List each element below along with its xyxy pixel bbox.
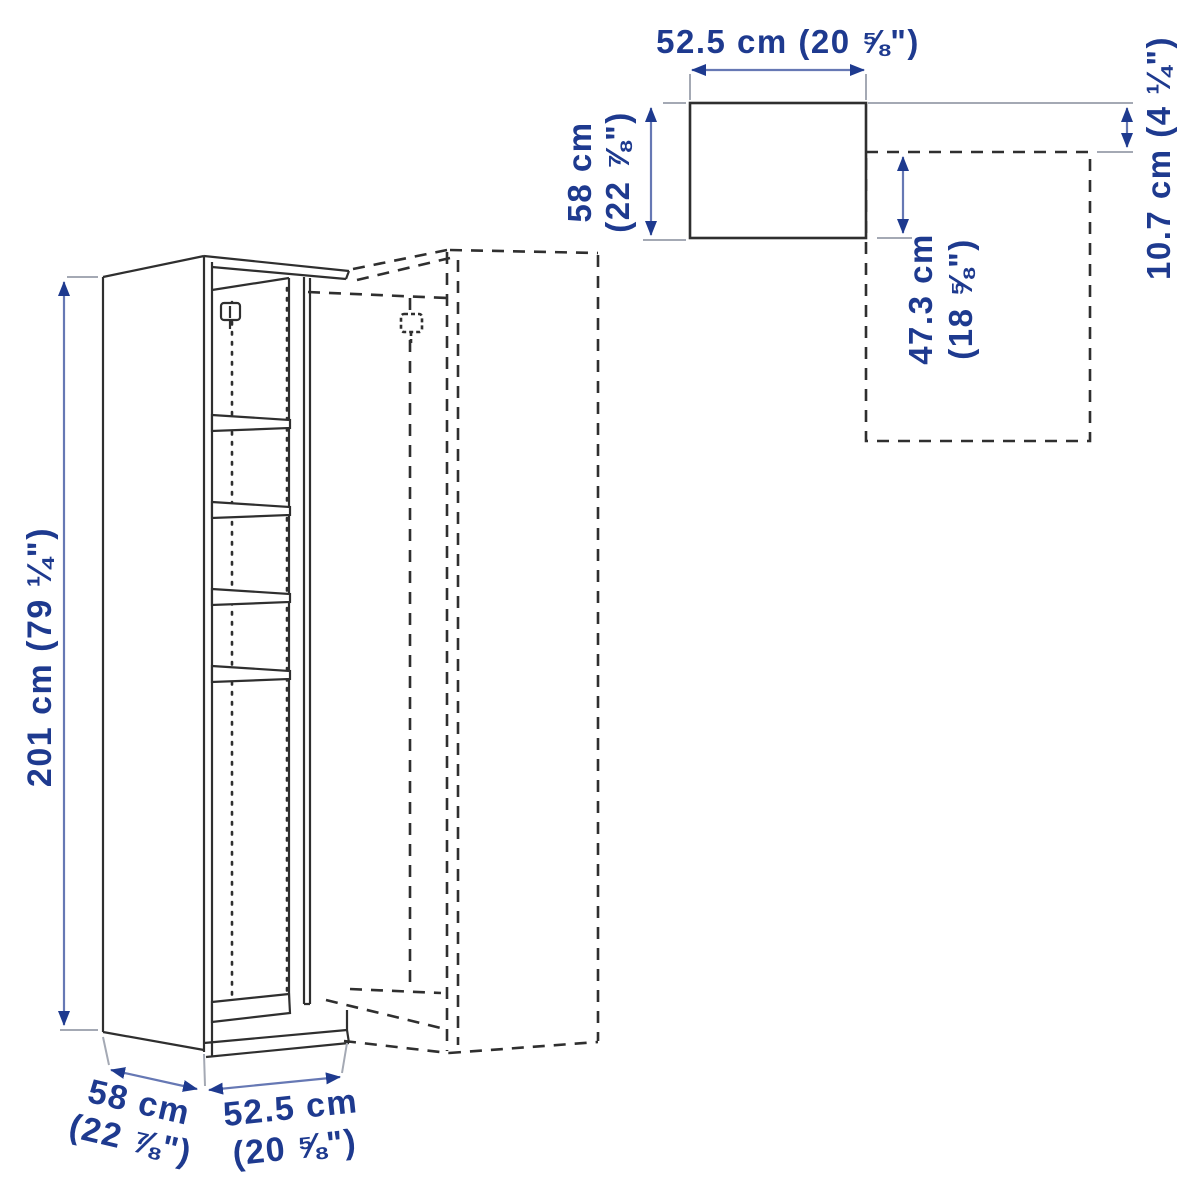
plan-overlap-label: 47.3 cm (18 ⅝") [902, 233, 979, 365]
plan-overlap-label-line2: (18 ⅝") [942, 238, 979, 360]
shelf-peg-holes [232, 288, 287, 1000]
frame-outline [103, 256, 349, 1057]
plan-view [690, 103, 1090, 441]
plan-depth-label: 58 cm (22 ⅞") [561, 111, 636, 233]
diagram-canvas: 52.5 cm (20 ⅝") 58 cm (22 ⅞") 47.3 cm (1… [0, 0, 1200, 1200]
height-label: 201 cm (79 ¼") [21, 527, 59, 787]
plan-overlap-label-line1: 47.3 cm [902, 233, 939, 365]
dimension-diagram: 52.5 cm (20 ⅝") 58 cm (22 ⅞") 47.3 cm (1… [0, 0, 1200, 1200]
plan-depth-label-line2: (22 ⅞") [599, 111, 636, 233]
leader-line-set [60, 74, 1133, 1086]
addon-frame-dashed [308, 250, 598, 1053]
addon-outline [308, 250, 598, 1053]
height-label-text: 201 cm (79 ¼") [21, 527, 59, 787]
plan-offset-label: 10.7 cm (4 ¼") [1140, 36, 1177, 280]
leader-lines [60, 74, 1133, 1086]
width-label: 52.5 cm (20 ⅝") [221, 1082, 364, 1174]
addon-wall-fitting [401, 314, 422, 332]
plan-frame-rect [690, 103, 866, 238]
wardrobe-solid-frame [103, 256, 349, 1057]
shelves [212, 415, 290, 1022]
plan-depth-label-line1: 58 cm [561, 121, 598, 222]
plan-offset-label-text: 10.7 cm (4 ¼") [1140, 36, 1177, 280]
plan-width-label: 52.5 cm (20 ⅝") [656, 23, 920, 60]
